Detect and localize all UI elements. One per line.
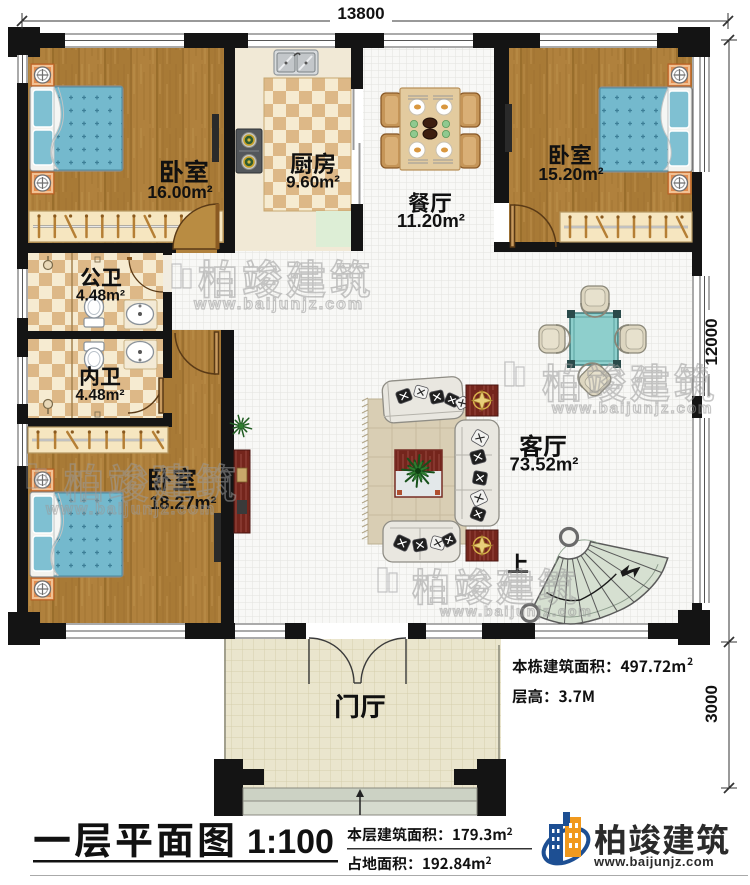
svg-text:4.48m²: 4.48m² <box>75 387 124 404</box>
svg-text:13800: 13800 <box>337 4 384 23</box>
svg-text:16.00m²: 16.00m² <box>147 182 212 202</box>
svg-text:4.48m²: 4.48m² <box>76 288 125 305</box>
svg-text:www.baijunjz.com: www.baijunjz.com <box>45 501 216 518</box>
svg-text:1:100: 1:100 <box>247 823 334 861</box>
svg-text:www.baijunjz.com: www.baijunjz.com <box>193 296 364 313</box>
svg-text:www.baijunjz.com: www.baijunjz.com <box>551 400 713 417</box>
svg-text:12000: 12000 <box>702 318 721 365</box>
svg-text:www.baijunjz.com: www.baijunjz.com <box>593 854 714 869</box>
svg-text:9.60m²: 9.60m² <box>286 173 340 192</box>
svg-text:15.20m²: 15.20m² <box>538 164 603 184</box>
svg-text:11.20m²: 11.20m² <box>397 210 465 231</box>
svg-text:73.52m²: 73.52m² <box>510 454 579 475</box>
svg-text:www.baijunjz.com: www.baijunjz.com <box>439 603 593 619</box>
svg-text:3000: 3000 <box>702 685 721 723</box>
